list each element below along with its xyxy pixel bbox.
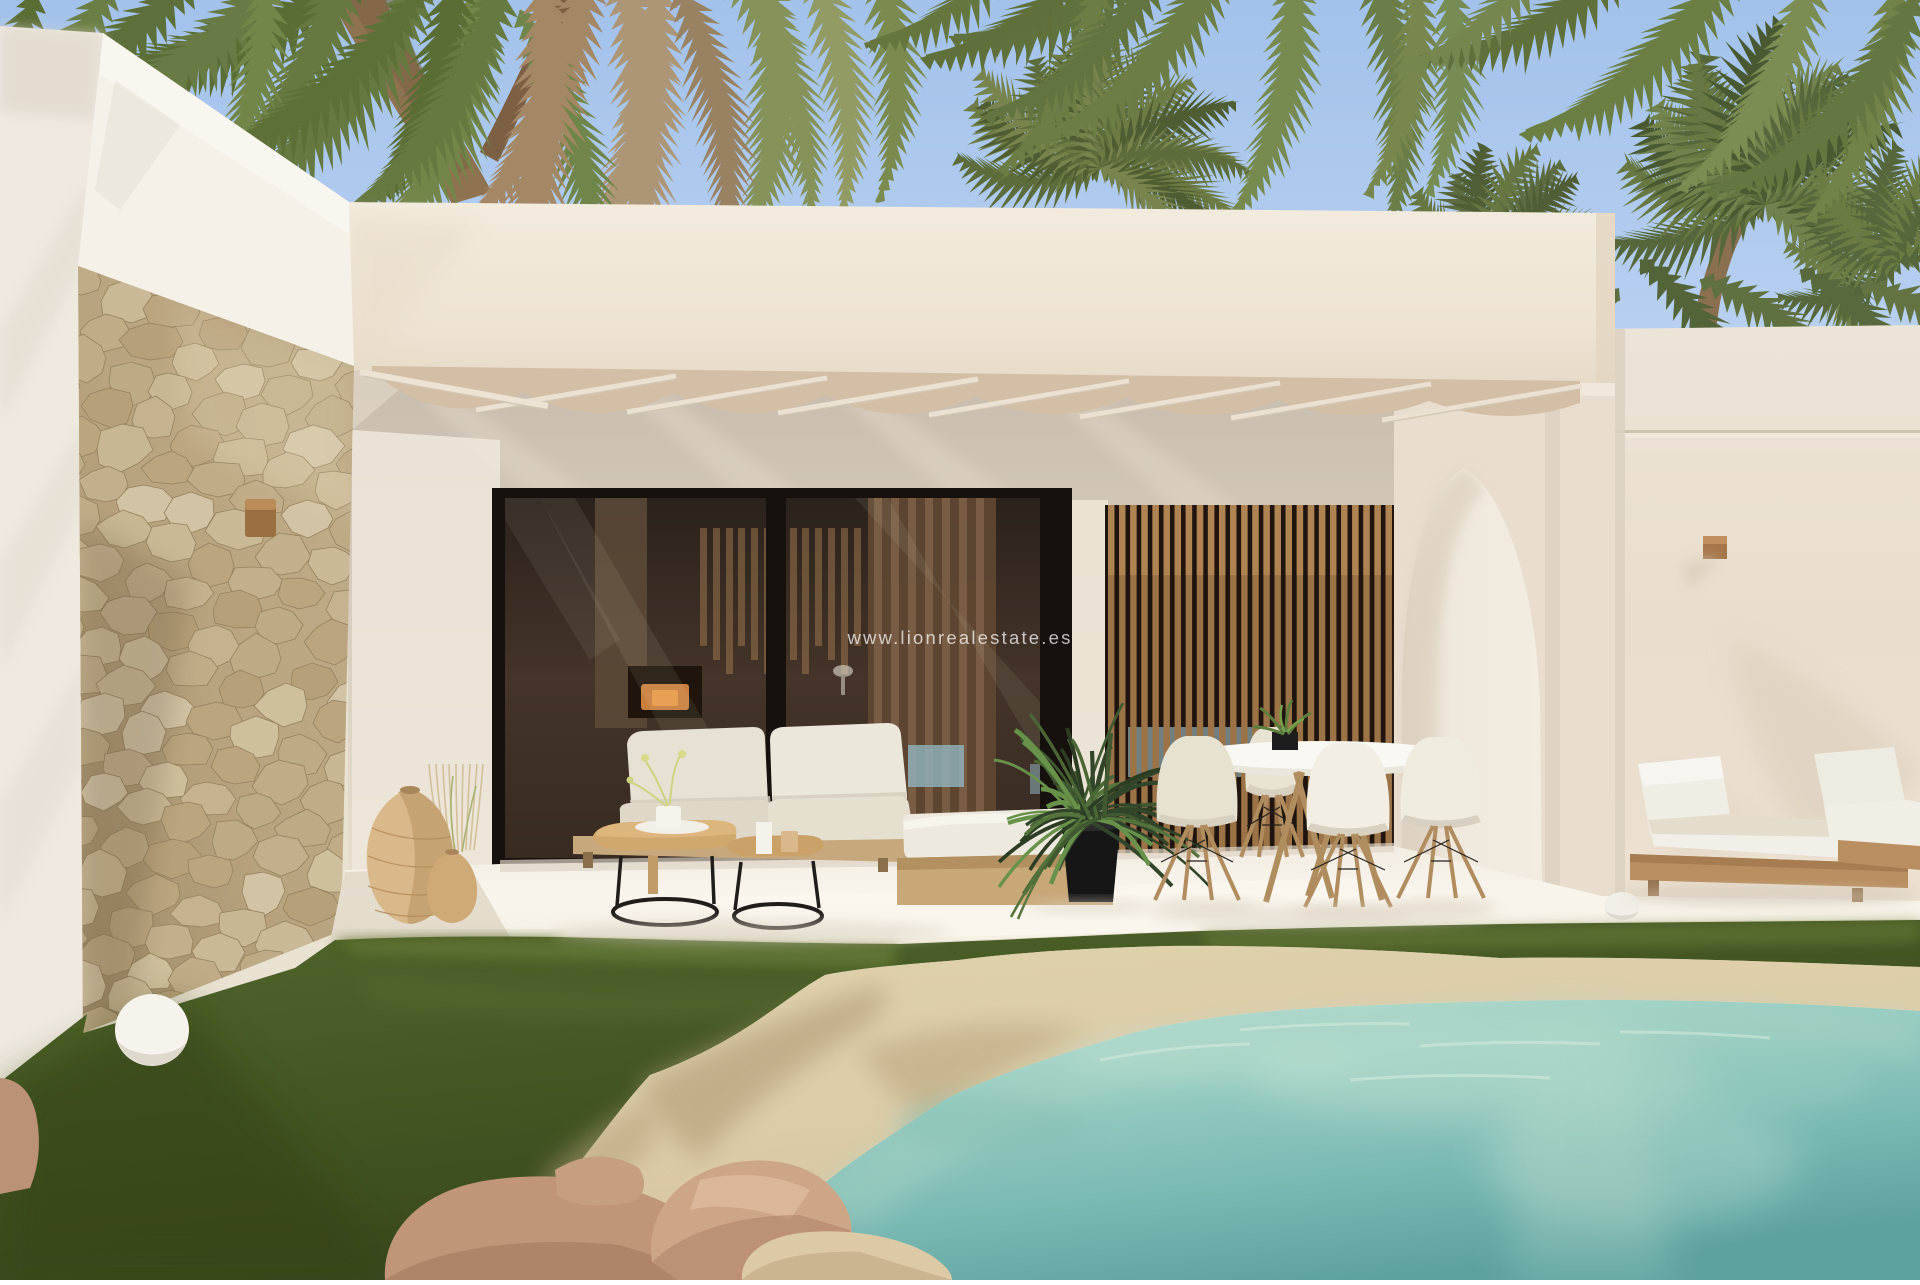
svg-text:www.lionrealestate.es: www.lionrealestate.es <box>846 627 1072 648</box>
